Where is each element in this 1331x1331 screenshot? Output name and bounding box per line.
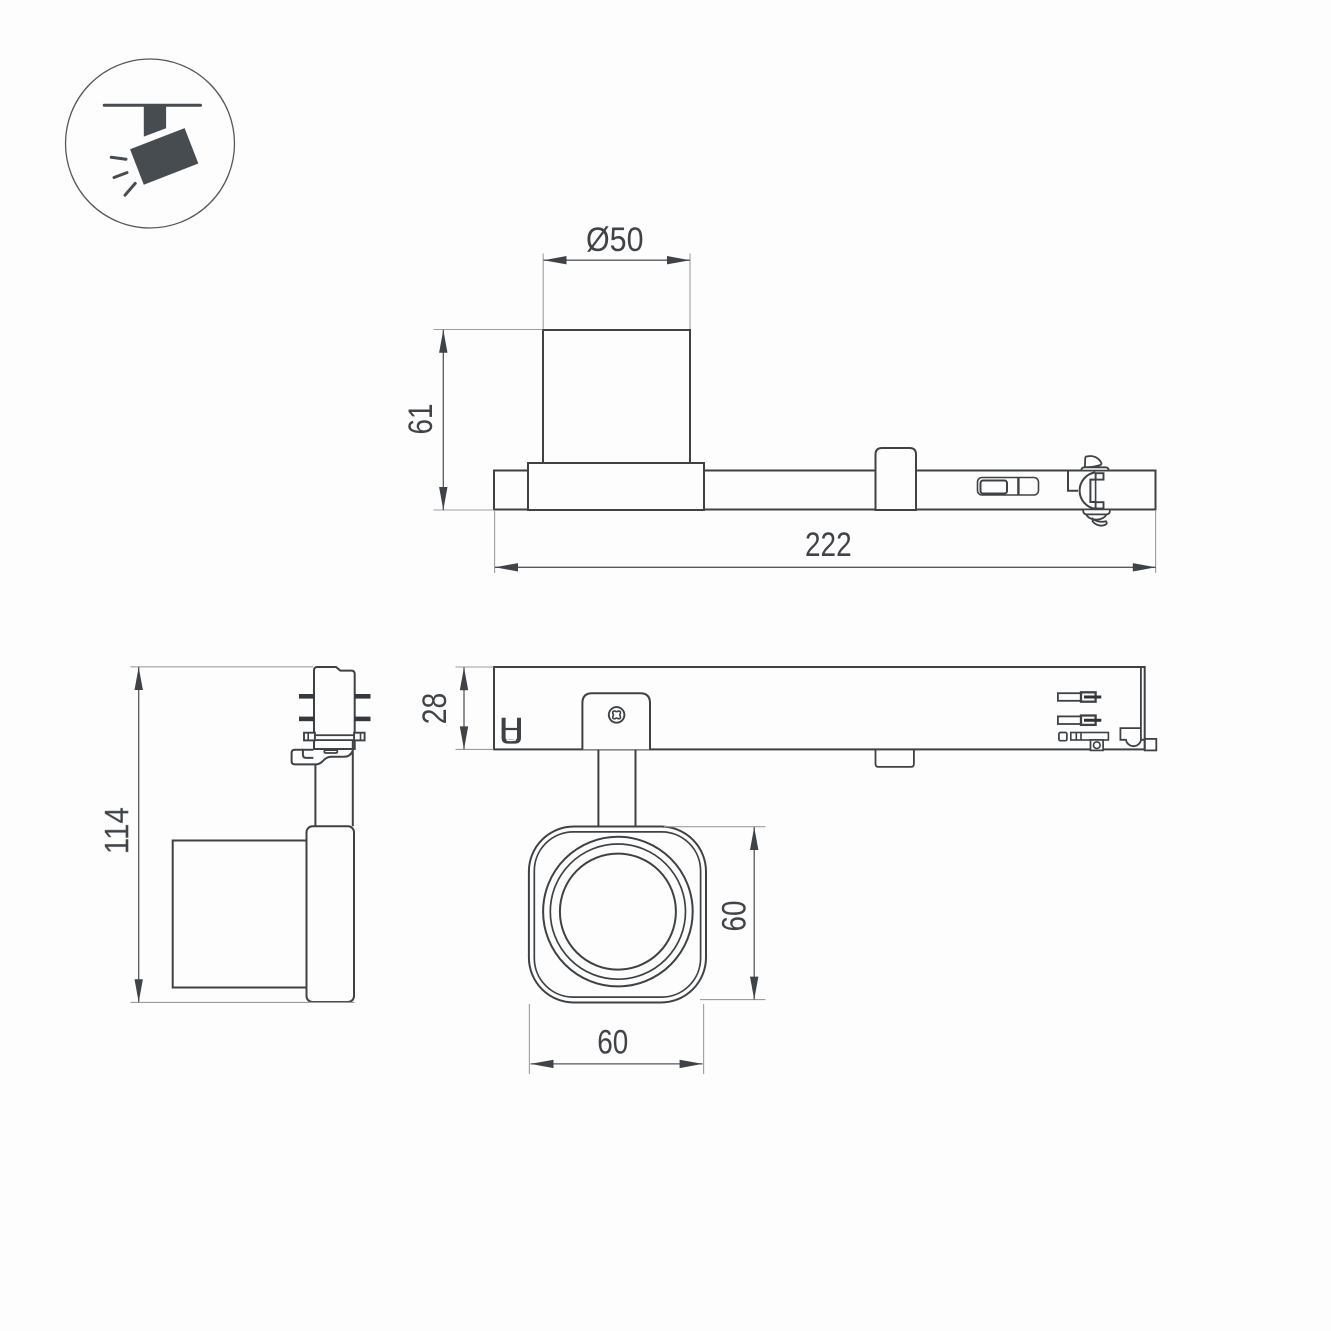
svg-text:222: 222 bbox=[805, 526, 852, 564]
svg-text:60: 60 bbox=[597, 1024, 628, 1062]
svg-text:Ø50: Ø50 bbox=[586, 221, 644, 259]
svg-text:28: 28 bbox=[416, 693, 454, 725]
svg-text:114: 114 bbox=[98, 807, 136, 854]
svg-text:61: 61 bbox=[402, 404, 440, 435]
svg-text:60: 60 bbox=[715, 901, 753, 932]
